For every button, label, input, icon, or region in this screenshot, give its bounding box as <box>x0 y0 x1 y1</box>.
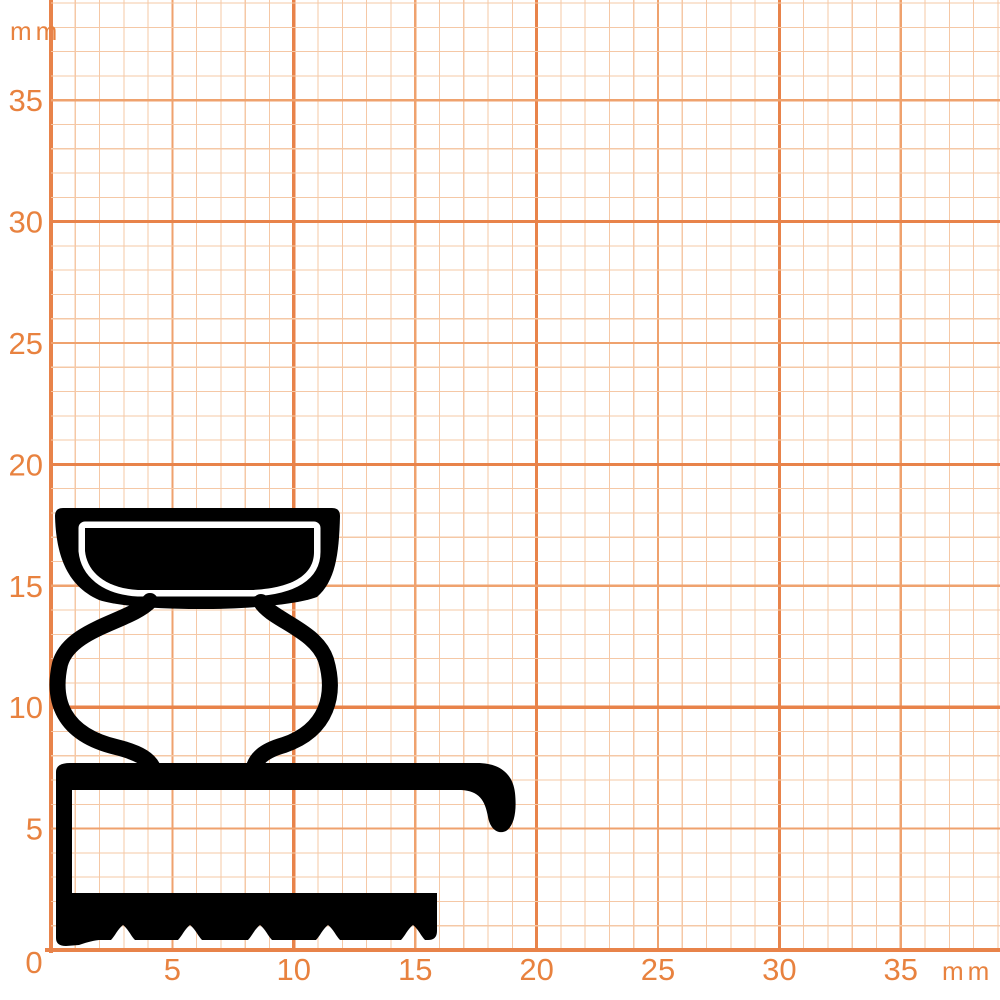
graph-paper: mm mm 0 51015202530355101520253035 <box>0 0 1000 1000</box>
y-tick-label-35: 35 <box>9 83 43 118</box>
x-tick-label-30: 30 <box>762 952 796 987</box>
y-tick-label-25: 25 <box>9 326 43 361</box>
y-tick-label-30: 30 <box>9 205 43 240</box>
y-axis-unit-label: mm <box>10 16 61 46</box>
y-tick-label-15: 15 <box>9 569 43 604</box>
x-axis-unit-label: mm <box>942 956 993 986</box>
x-tick-label-5: 5 <box>164 952 181 987</box>
x-tick-label-10: 10 <box>277 952 311 987</box>
x-tick-label-20: 20 <box>519 952 553 987</box>
profile-bowl-inner-fill <box>85 528 314 590</box>
x-tick-label-35: 35 <box>884 952 918 987</box>
x-tick-label-15: 15 <box>398 952 432 987</box>
y-tick-label-5: 5 <box>26 812 43 847</box>
profile-bulb-left-wall <box>58 601 154 771</box>
mm-grid <box>45 0 1000 953</box>
profile-base-section <box>56 763 516 946</box>
diagram-canvas: mm mm 0 51015202530355101520253035 <box>0 0 1000 1000</box>
y-tick-label-10: 10 <box>9 690 43 725</box>
axis-labels: mm mm 0 51015202530355101520253035 <box>9 16 994 987</box>
x-tick-label-25: 25 <box>641 952 675 987</box>
origin-label: 0 <box>25 945 42 980</box>
y-tick-label-20: 20 <box>9 447 43 482</box>
